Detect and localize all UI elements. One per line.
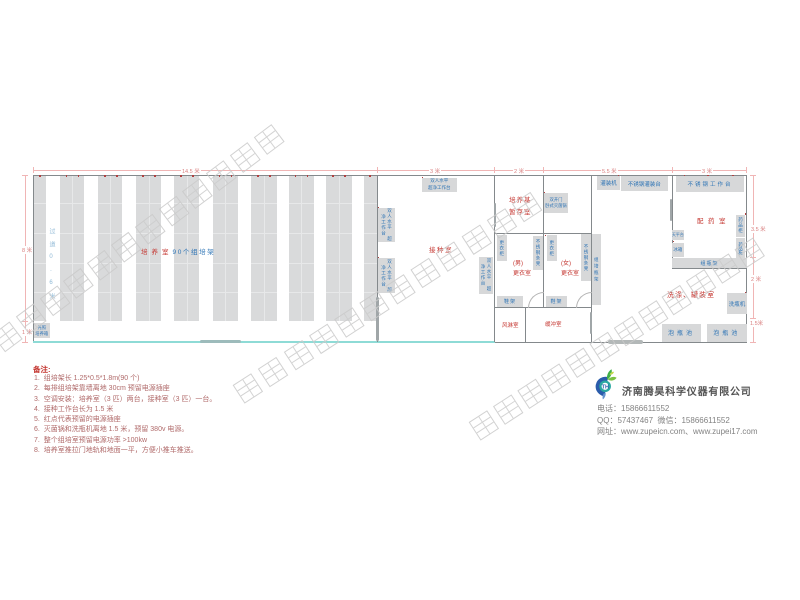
svg-text:TH: TH	[602, 384, 609, 390]
